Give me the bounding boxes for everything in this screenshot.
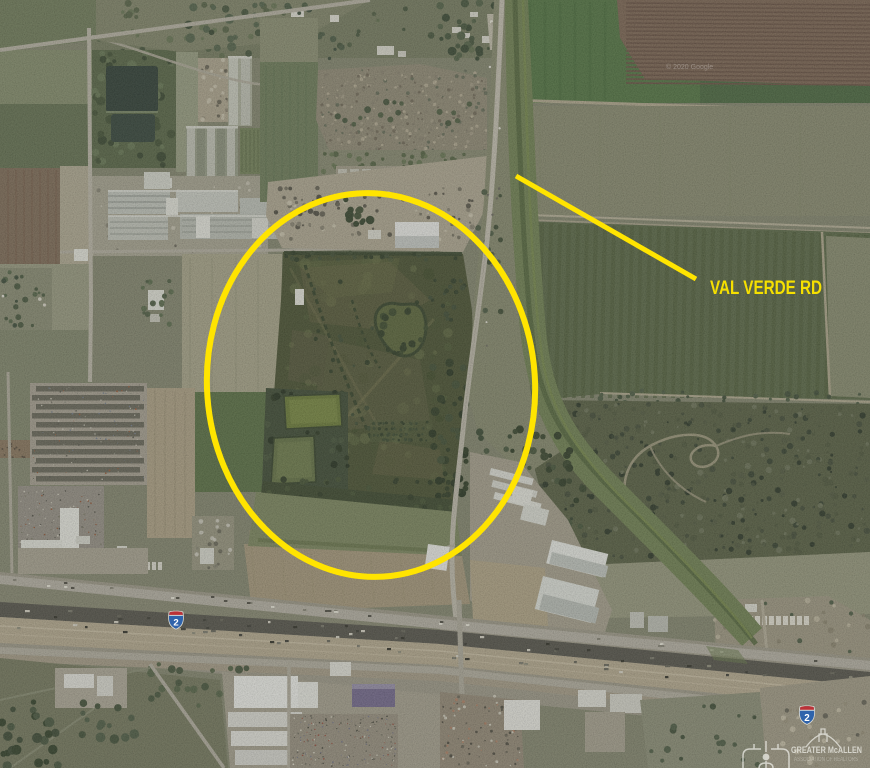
svg-text:GREATER McALLEN: GREATER McALLEN (791, 745, 862, 756)
svg-text:© 2020 Google: © 2020 Google (666, 63, 713, 71)
svg-text:2: 2 (804, 713, 810, 724)
svg-text:VAL VERDE RD: VAL VERDE RD (710, 277, 822, 299)
svg-text:2: 2 (173, 618, 178, 629)
svg-text:ASSOCIATION OF REALTORS: ASSOCIATION OF REALTORS (794, 757, 858, 763)
